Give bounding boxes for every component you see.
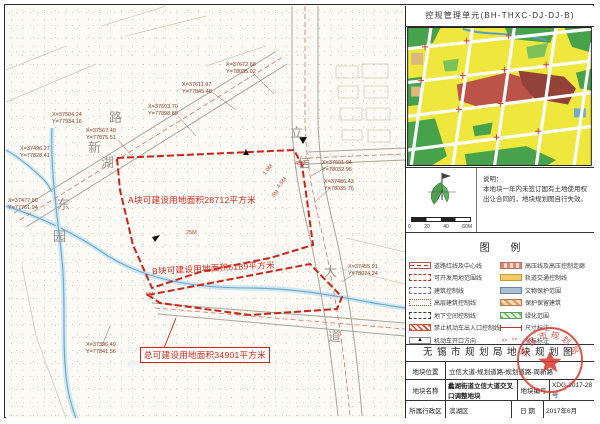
coord-y: Y=78035.76 (324, 186, 354, 193)
title-block-row: 所属行政区 滨湖区 日 期 2017年6月 (406, 401, 594, 418)
coord-x: X=37611.97 (182, 82, 212, 89)
road-name-char: 新 (88, 137, 101, 156)
legend-right-column: 高压线及高压控制走廊 轨道交通控制线 文物保护范围 保护保留建筑 绿化范围 尺寸… (500, 259, 591, 347)
developable-boundary-icon (409, 274, 431, 281)
scale-tick: 40 (443, 224, 449, 230)
legend-section: 图 例 道路红线及中心线 可开发用地范围线 建筑控制线 高层建筑控制线 地下空间… (406, 233, 594, 345)
coord-x: X=37496.27 (20, 146, 50, 153)
legend-label: 建筑控制线 (434, 286, 464, 295)
coord-x: X=37601.94 (322, 160, 352, 167)
coordinate-label: X=37477.60Y=77761.94 (8, 198, 38, 212)
coord-y: Y=78032.96 (322, 167, 352, 174)
coord-x: X=37455.91 (348, 264, 378, 271)
inset-zoning-map-box (406, 27, 594, 168)
road-name-char: 立 (290, 122, 303, 141)
coordinate-label: X=37496.27Y=77828.41 (20, 146, 50, 160)
area-label-a: A块可建设用地面积28712平方米 (128, 194, 256, 206)
coordinate-label: X=37672.68Y=78035.02 (226, 62, 256, 76)
scale-tick: 20 (424, 224, 430, 230)
legend-row: 道路红线及中心线 (409, 259, 500, 272)
field-value: 2017年6月 (544, 401, 594, 418)
road-name-char: 路 (109, 107, 122, 126)
legend-row: 高层建筑控制线 (409, 297, 500, 310)
legend-row: 禁止机动车出入口控制线 (409, 322, 500, 335)
side-panel: 控规管理单元(BH-THXC-DJ-DJ-B) (405, 6, 594, 418)
dimension-label: 45M (295, 161, 306, 167)
preserved-building-icon (500, 299, 522, 306)
field-value: 蠡湖街道立信大道交叉口调整地块 (446, 380, 518, 400)
vehicle-opening-icon: ▲ (409, 337, 431, 344)
title-block-row: 地块名称 蠡湖街道立信大道交叉口调整地块 地块编号 XDG-2017-28号 (406, 380, 594, 401)
no-vehicle-access-icon (409, 324, 431, 331)
title-block-row: 地块位置 立信大道-规划道路-规划道路-周新路 (406, 362, 594, 380)
legend-label: 可开发用地范围线 (434, 273, 482, 282)
road-name-char: 道 (328, 326, 341, 345)
notes-section: 0 20 40 60M 说明： 本地块一年内未签订国有土地使用权 出让合同的，地… (406, 168, 594, 233)
coordinate-label: X=37504.24Y=77934.16 (52, 112, 82, 126)
coordinate-label: X=37486.43Y=78035.76 (324, 179, 354, 193)
coord-x: X=37567.40 (86, 128, 116, 135)
notes-heading: 说明： (483, 175, 589, 185)
inset-zoning-map (406, 27, 593, 166)
panel-title: 控规管理单元(BH-THXC-DJ-DJ-B) (406, 6, 594, 27)
legend-row: 文物保护范围 (500, 284, 591, 297)
inset-tan-zone (411, 53, 423, 65)
coord-x: X=37504.24 (52, 112, 82, 119)
dimension-label: 5M (146, 292, 154, 298)
legend-label: 保护保留建筑 (525, 298, 561, 307)
coord-x: X=37486.43 (324, 179, 354, 186)
legend-row: 高压线及高压控制走廊 (500, 259, 591, 272)
leader-lines (102, 74, 354, 346)
road-name-char: 东 (57, 194, 70, 213)
main-plan-map: A块可建设用地面积28712平方米 B块可建设用地面积6189平方米 总可建设用… (6, 6, 405, 418)
field-value: XDG-2017-28号 (550, 380, 594, 400)
greenery-range-icon (500, 312, 522, 319)
scale-bar-ticks: 0 20 40 60M (408, 224, 472, 230)
field-label: 地块名称 (406, 380, 446, 400)
north-and-scale: 0 20 40 60M (406, 168, 477, 232)
legend-row: 尺寸标注 (500, 322, 591, 335)
plan-sheet: A块可建设用地面积28712平方米 B块可建设用地面积6189平方米 总可建设用… (0, 0, 600, 424)
total-area-leader (164, 318, 176, 348)
legend-label: 尺寸标注 (525, 323, 549, 332)
coord-x: X=37672.68 (226, 62, 256, 69)
legend-row: 可开发用地范围线 (409, 272, 500, 285)
legend-label: 禁止机动车出入口控制线 (434, 323, 500, 332)
coord-y: Y=77761.94 (8, 205, 38, 212)
scale-tick: 0 (408, 224, 411, 230)
legend-label: 坐标标注 (525, 336, 549, 345)
coordinate-label: X=37396.49Y=77841.56 (86, 342, 116, 356)
field-label: 地块位置 (406, 362, 446, 379)
legend-row: 轨道交通控制线 (500, 272, 591, 285)
coord-y: Y=77898.89 (148, 111, 178, 118)
legend-label: 地下空间控制线 (434, 311, 476, 320)
heritage-protection-icon (500, 287, 522, 294)
road-name-char: 湖 (101, 152, 114, 171)
road-name-char: 大 (324, 261, 337, 280)
road-name-char: 园 (53, 226, 66, 245)
high-voltage-corridor-icon (500, 262, 522, 269)
legend-row: 建筑控制线 (409, 284, 500, 297)
coord-y: Y=77845.48 (182, 89, 212, 96)
legend-title: 图 例 (415, 239, 594, 254)
field-label: 日 期 (512, 401, 544, 418)
field-label: 地块编号 (518, 380, 550, 400)
legend-row: 保护保留建筑 (500, 297, 591, 310)
coord-x: X=37603.70 (148, 104, 178, 111)
coordinate-label: X=37601.94Y=78032.96 (322, 160, 352, 174)
highrise-control-line-icon (409, 299, 431, 306)
rail-transit-icon (500, 274, 522, 281)
legend-label: 道路红线及中心线 (434, 261, 482, 270)
notes-line: 本地块一年内未签订国有土地使用权 (483, 185, 589, 195)
coord-x: X=37477.60 (8, 198, 38, 205)
north-arrow-icon (420, 170, 464, 210)
coord-x: X=37396.49 (86, 342, 116, 349)
field-label: 所属行政区 (406, 401, 446, 418)
underground-control-line-icon (409, 312, 431, 319)
dimension-annotation-icon (500, 325, 522, 331)
scale-bar (411, 217, 471, 222)
road-redline-icon (409, 262, 431, 269)
notes-line: 出让合同的，地块规划图自行失效。 (483, 195, 589, 205)
legend-label: 高压线及高压控制走廊 (525, 261, 585, 270)
coord-y: Y=78074.24 (348, 271, 378, 278)
coordinate-label: X=37603.70Y=77898.89 (148, 104, 178, 118)
coordinate-label: X=37611.97Y=77845.48 (182, 82, 212, 96)
scale-tick: 60M (462, 224, 472, 230)
field-value: 滨湖区 (446, 401, 512, 418)
coordinate-label: X=37455.91Y=78074.24 (348, 264, 378, 278)
legend-label: 机动车开口方向 (434, 336, 476, 345)
area-label-total: 总可建设用地面积34901平方米 (140, 347, 270, 363)
coord-y: Y=78035.02 (226, 69, 256, 76)
title-block-header: 无锡市规划局地块规划图 (406, 345, 594, 362)
coord-y: Y=77828.41 (20, 153, 50, 160)
legend-label: 绿化范围 (525, 311, 549, 320)
legend-row: 地下空间控制线 (409, 309, 500, 322)
legend-row: 绿化范围 (500, 309, 591, 322)
coord-y: Y=77841.56 (86, 349, 116, 356)
building-control-line-icon (409, 287, 431, 294)
coordinate-annotation-icon: X=·· Y=·· (500, 336, 523, 345)
legend-label: 高层建筑控制线 (434, 298, 476, 307)
field-value: 立信大道-规划道路-规划道路-周新路 (446, 362, 594, 379)
legend-left-column: 道路红线及中心线 可开发用地范围线 建筑控制线 高层建筑控制线 地下空间控制线 … (409, 259, 500, 347)
legend-label: 轨道交通控制线 (525, 273, 567, 282)
notes-text: 说明： 本地块一年内未签订国有土地使用权 出让合同的，地块规划图自行失效。 (477, 168, 594, 232)
coord-y: Y=77934.16 (52, 119, 82, 126)
inset-tan-zone (411, 87, 421, 97)
dimension-label: 25M (186, 230, 197, 236)
title-block: 无锡市规划局地块规划图 地块位置 立信大道-规划道路-规划道路-周新路 地块名称… (406, 345, 594, 418)
legend-label: 文物保护范围 (525, 286, 561, 295)
